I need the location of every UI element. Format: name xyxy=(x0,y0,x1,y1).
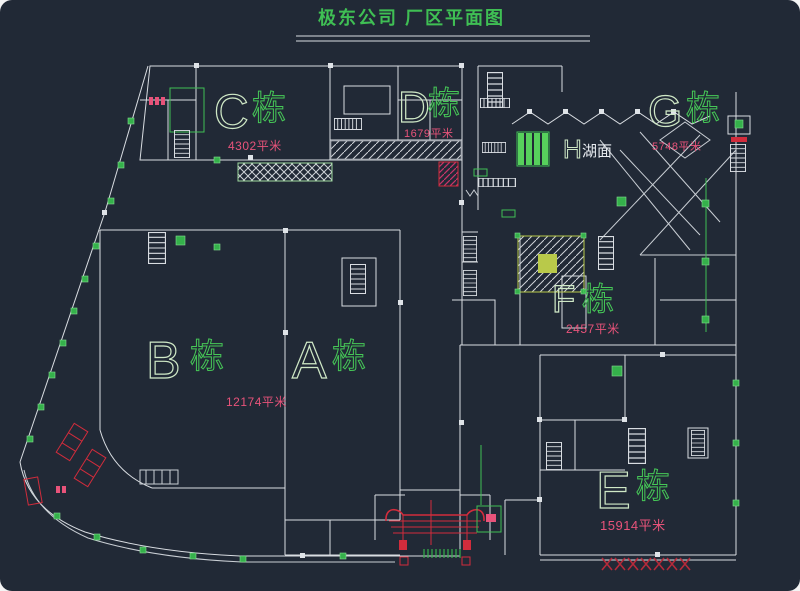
building-AB-area: 12174平米 xyxy=(226,395,287,409)
green-tag xyxy=(502,210,515,217)
building-E-letter: E xyxy=(596,462,631,520)
cad-drawing-canvas: 极东公司 厂区平面图 C 栋 4302平米 D 栋 1679平米 xyxy=(0,0,800,591)
building-C-suffix: 栋 xyxy=(252,90,286,128)
parking-hatch xyxy=(331,141,461,159)
roof-structure xyxy=(344,86,390,114)
building-G-suffix: 栋 xyxy=(686,90,720,128)
stairs-icon xyxy=(463,236,477,261)
building-A-letter: A xyxy=(292,332,327,390)
stairs-icon xyxy=(481,98,510,108)
building-B-suffix: 栋 xyxy=(190,338,224,376)
building-E-suffix: 栋 xyxy=(636,468,670,506)
stairs-icon xyxy=(546,442,562,469)
gate-green-grille xyxy=(424,549,460,558)
building-A-suffix: 栋 xyxy=(332,338,366,376)
tree-marker xyxy=(176,236,185,245)
stairs-icon xyxy=(691,430,705,455)
building-C-letter: C xyxy=(214,86,249,139)
building-G-label: G 栋 5748平米 xyxy=(648,87,720,153)
stairs-icon xyxy=(463,270,477,295)
lake-H-letter: H xyxy=(563,134,582,164)
stair-core xyxy=(342,258,376,306)
crosshatch-strip xyxy=(238,163,332,181)
west-parcel xyxy=(100,230,460,555)
stairs-icon xyxy=(487,73,503,108)
building-F-area: 2457平米 xyxy=(566,322,620,336)
factory-site-plan: 极东公司 厂区平面图 C 栋 4302平米 D 栋 1679平米 xyxy=(0,0,800,591)
building-D-suffix: 栋 xyxy=(428,85,460,121)
building-F-zone: F 栋 2457平米 xyxy=(515,233,620,345)
stairs-icon xyxy=(174,130,190,157)
building-A-label: A 栋 xyxy=(292,332,366,390)
ramp-hatch xyxy=(439,162,458,186)
building-D-area: 1679平米 xyxy=(404,127,453,140)
lake-H-label: H 湖面 xyxy=(563,134,612,164)
stairs-icon xyxy=(598,237,614,270)
building-E-zone: E 栋 15914平米 xyxy=(537,345,739,570)
stairs-icon xyxy=(334,118,361,130)
tree-marker xyxy=(214,244,220,250)
building-F-letter: F xyxy=(552,279,575,321)
building-G-area: 5748平米 xyxy=(652,140,701,153)
building-F-suffix: 栋 xyxy=(582,281,614,317)
drawing-title-block: 极东公司 厂区平面图 xyxy=(296,7,590,41)
green-tag xyxy=(474,169,487,176)
stairs-icon xyxy=(628,429,646,464)
building-B-label: B 栋 xyxy=(146,332,224,390)
stairs-icon xyxy=(482,142,505,153)
yellow-block xyxy=(538,254,557,273)
building-C-area: 4302平米 xyxy=(228,139,282,153)
page-title: 极东公司 厂区平面图 xyxy=(318,7,505,28)
building-D-letter: D xyxy=(398,83,430,132)
vehicles xyxy=(24,423,106,505)
building-B-letter: B xyxy=(146,332,181,390)
stairs-icon xyxy=(350,265,366,294)
hedge-strip xyxy=(517,132,549,166)
service-block xyxy=(140,470,178,484)
stairs-icon xyxy=(479,178,516,187)
tree-marker xyxy=(612,366,622,376)
building-G-letter: G xyxy=(648,87,682,136)
building-D-label: D 栋 1679平米 xyxy=(398,83,460,140)
lake-H-suffix: 湖面 xyxy=(582,143,612,160)
tree-marker xyxy=(617,197,626,206)
green-room-outline xyxy=(170,88,204,132)
zigzag-mark xyxy=(466,190,478,196)
building-E-area: 15914平米 xyxy=(600,518,666,533)
title-underline xyxy=(296,36,590,41)
stairs-icon xyxy=(148,233,166,264)
small-magenta-label xyxy=(149,97,165,105)
gate-roof xyxy=(386,510,484,521)
right-annex xyxy=(728,116,750,172)
building-C-label: C 栋 4302平米 xyxy=(214,86,286,153)
